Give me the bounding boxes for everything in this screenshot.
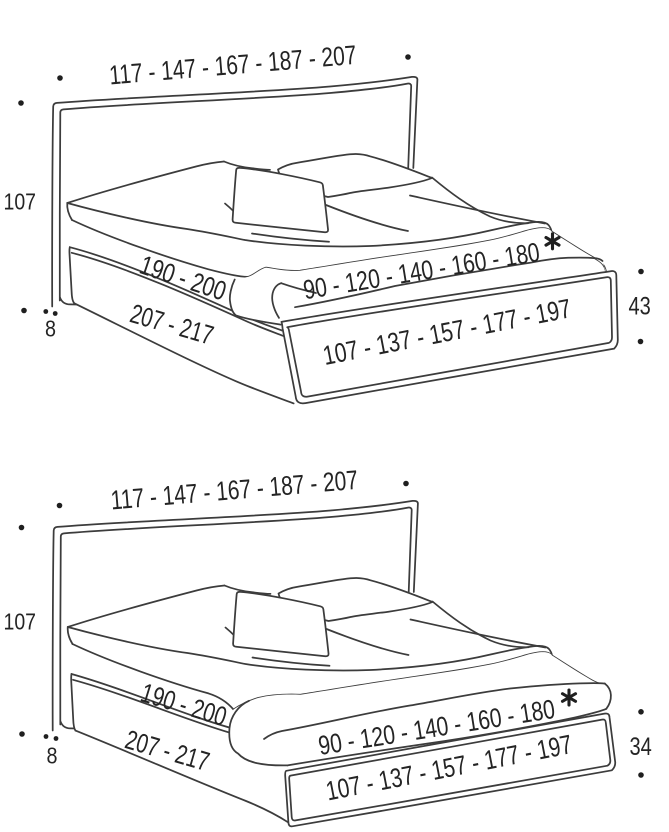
svg-text:107: 107 — [4, 609, 37, 635]
svg-text:8: 8 — [45, 316, 56, 342]
svg-text:8: 8 — [47, 743, 58, 769]
svg-text:107: 107 — [4, 189, 37, 215]
svg-text:43: 43 — [629, 293, 651, 321]
svg-text:34: 34 — [630, 733, 652, 761]
